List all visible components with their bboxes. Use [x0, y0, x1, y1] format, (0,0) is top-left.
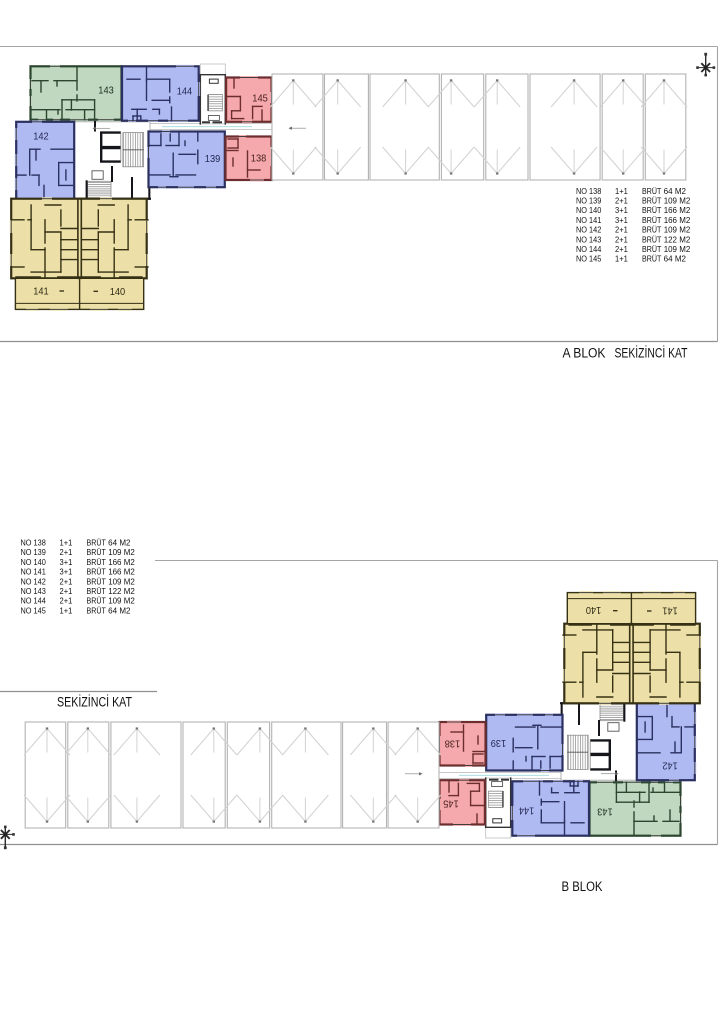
- svg-text:3+1: 3+1: [615, 216, 628, 225]
- svg-text:NO 139: NO 139: [21, 548, 47, 557]
- svg-text:BRÜT: BRÜT: [642, 216, 661, 225]
- svg-text:64 M2: 64 M2: [108, 606, 131, 615]
- svg-text:2+1: 2+1: [615, 245, 628, 254]
- svg-text:BRÜT: BRÜT: [642, 187, 661, 196]
- svg-text:2+1: 2+1: [615, 197, 628, 206]
- svg-text:144: 144: [177, 87, 193, 98]
- svg-text:NO 144: NO 144: [21, 597, 47, 606]
- svg-text:BRÜT: BRÜT: [87, 548, 106, 557]
- svg-text:142: 142: [33, 132, 49, 143]
- svg-text:141: 141: [33, 287, 49, 298]
- svg-text:109 M2: 109 M2: [108, 597, 135, 606]
- svg-text:2+1: 2+1: [60, 587, 73, 596]
- svg-text:NO 140: NO 140: [576, 206, 602, 215]
- svg-text:109 M2: 109 M2: [108, 548, 135, 557]
- svg-text:2+1: 2+1: [60, 548, 73, 557]
- svg-text:NO 142: NO 142: [21, 577, 47, 586]
- svg-text:122 M2: 122 M2: [664, 235, 691, 244]
- svg-text:143: 143: [98, 85, 114, 96]
- svg-text:109 M2: 109 M2: [664, 245, 691, 254]
- svg-text:B BLOK: B BLOK: [562, 879, 603, 894]
- svg-text:64 M2: 64 M2: [108, 539, 131, 548]
- svg-text:139: 139: [205, 154, 221, 165]
- svg-text:166 M2: 166 M2: [664, 216, 691, 225]
- svg-text:1+1: 1+1: [60, 606, 73, 615]
- svg-text:NO 138: NO 138: [576, 187, 602, 196]
- svg-text:2+1: 2+1: [60, 597, 73, 606]
- svg-text:109 M2: 109 M2: [108, 577, 135, 586]
- svg-text:SEKİZİNCİ KAT: SEKİZİNCİ KAT: [615, 346, 688, 361]
- svg-text:BRÜT: BRÜT: [87, 558, 106, 567]
- svg-text:1+1: 1+1: [615, 255, 628, 264]
- svg-text:1+1: 1+1: [615, 187, 628, 196]
- svg-text:A BLOK: A BLOK: [563, 346, 606, 361]
- svg-text:NO 145: NO 145: [576, 255, 602, 264]
- svg-text:BRÜT: BRÜT: [642, 206, 661, 215]
- svg-text:64 M2: 64 M2: [664, 255, 687, 264]
- svg-text:NO 141: NO 141: [576, 216, 602, 225]
- svg-text:166 M2: 166 M2: [108, 558, 135, 567]
- svg-text:2+1: 2+1: [615, 235, 628, 244]
- svg-text:NO 143: NO 143: [21, 587, 47, 596]
- svg-text:NO 138: NO 138: [21, 539, 47, 548]
- svg-text:NO 140: NO 140: [21, 558, 47, 567]
- svg-text:BRÜT: BRÜT: [87, 577, 106, 586]
- svg-text:NO 145: NO 145: [21, 606, 47, 615]
- svg-text:BRÜT: BRÜT: [642, 255, 661, 264]
- svg-text:BRÜT: BRÜT: [87, 606, 106, 615]
- svg-text:122 M2: 122 M2: [108, 587, 135, 596]
- svg-text:1+1: 1+1: [60, 539, 73, 548]
- svg-text:BRÜT: BRÜT: [642, 197, 661, 206]
- svg-text:3+1: 3+1: [615, 206, 628, 215]
- svg-text:BRÜT: BRÜT: [642, 235, 661, 244]
- svg-text:64 M2: 64 M2: [664, 187, 687, 196]
- svg-text:NO 139: NO 139: [576, 197, 602, 206]
- svg-text:NO 143: NO 143: [576, 235, 602, 244]
- svg-text:109 M2: 109 M2: [664, 226, 691, 235]
- svg-text:2+1: 2+1: [60, 577, 73, 586]
- svg-text:109 M2: 109 M2: [664, 197, 691, 206]
- svg-text:NO 142: NO 142: [576, 226, 602, 235]
- svg-text:3+1: 3+1: [60, 568, 73, 577]
- svg-text:138: 138: [251, 154, 267, 165]
- svg-text:166 M2: 166 M2: [664, 206, 691, 215]
- svg-text:145: 145: [252, 94, 268, 105]
- svg-text:NO 141: NO 141: [21, 568, 47, 577]
- svg-text:BRÜT: BRÜT: [87, 587, 106, 596]
- svg-text:166 M2: 166 M2: [108, 568, 135, 577]
- svg-text:140: 140: [110, 287, 126, 298]
- svg-text:NO 144: NO 144: [576, 245, 602, 254]
- svg-text:BRÜT: BRÜT: [87, 597, 106, 606]
- svg-text:BRÜT: BRÜT: [642, 245, 661, 254]
- svg-text:BRÜT: BRÜT: [87, 568, 106, 577]
- svg-text:2+1: 2+1: [615, 226, 628, 235]
- svg-text:SEKİZİNCİ KAT: SEKİZİNCİ KAT: [57, 695, 132, 710]
- svg-text:BRÜT: BRÜT: [642, 226, 661, 235]
- svg-text:3+1: 3+1: [60, 558, 73, 567]
- svg-text:BRÜT: BRÜT: [87, 539, 106, 548]
